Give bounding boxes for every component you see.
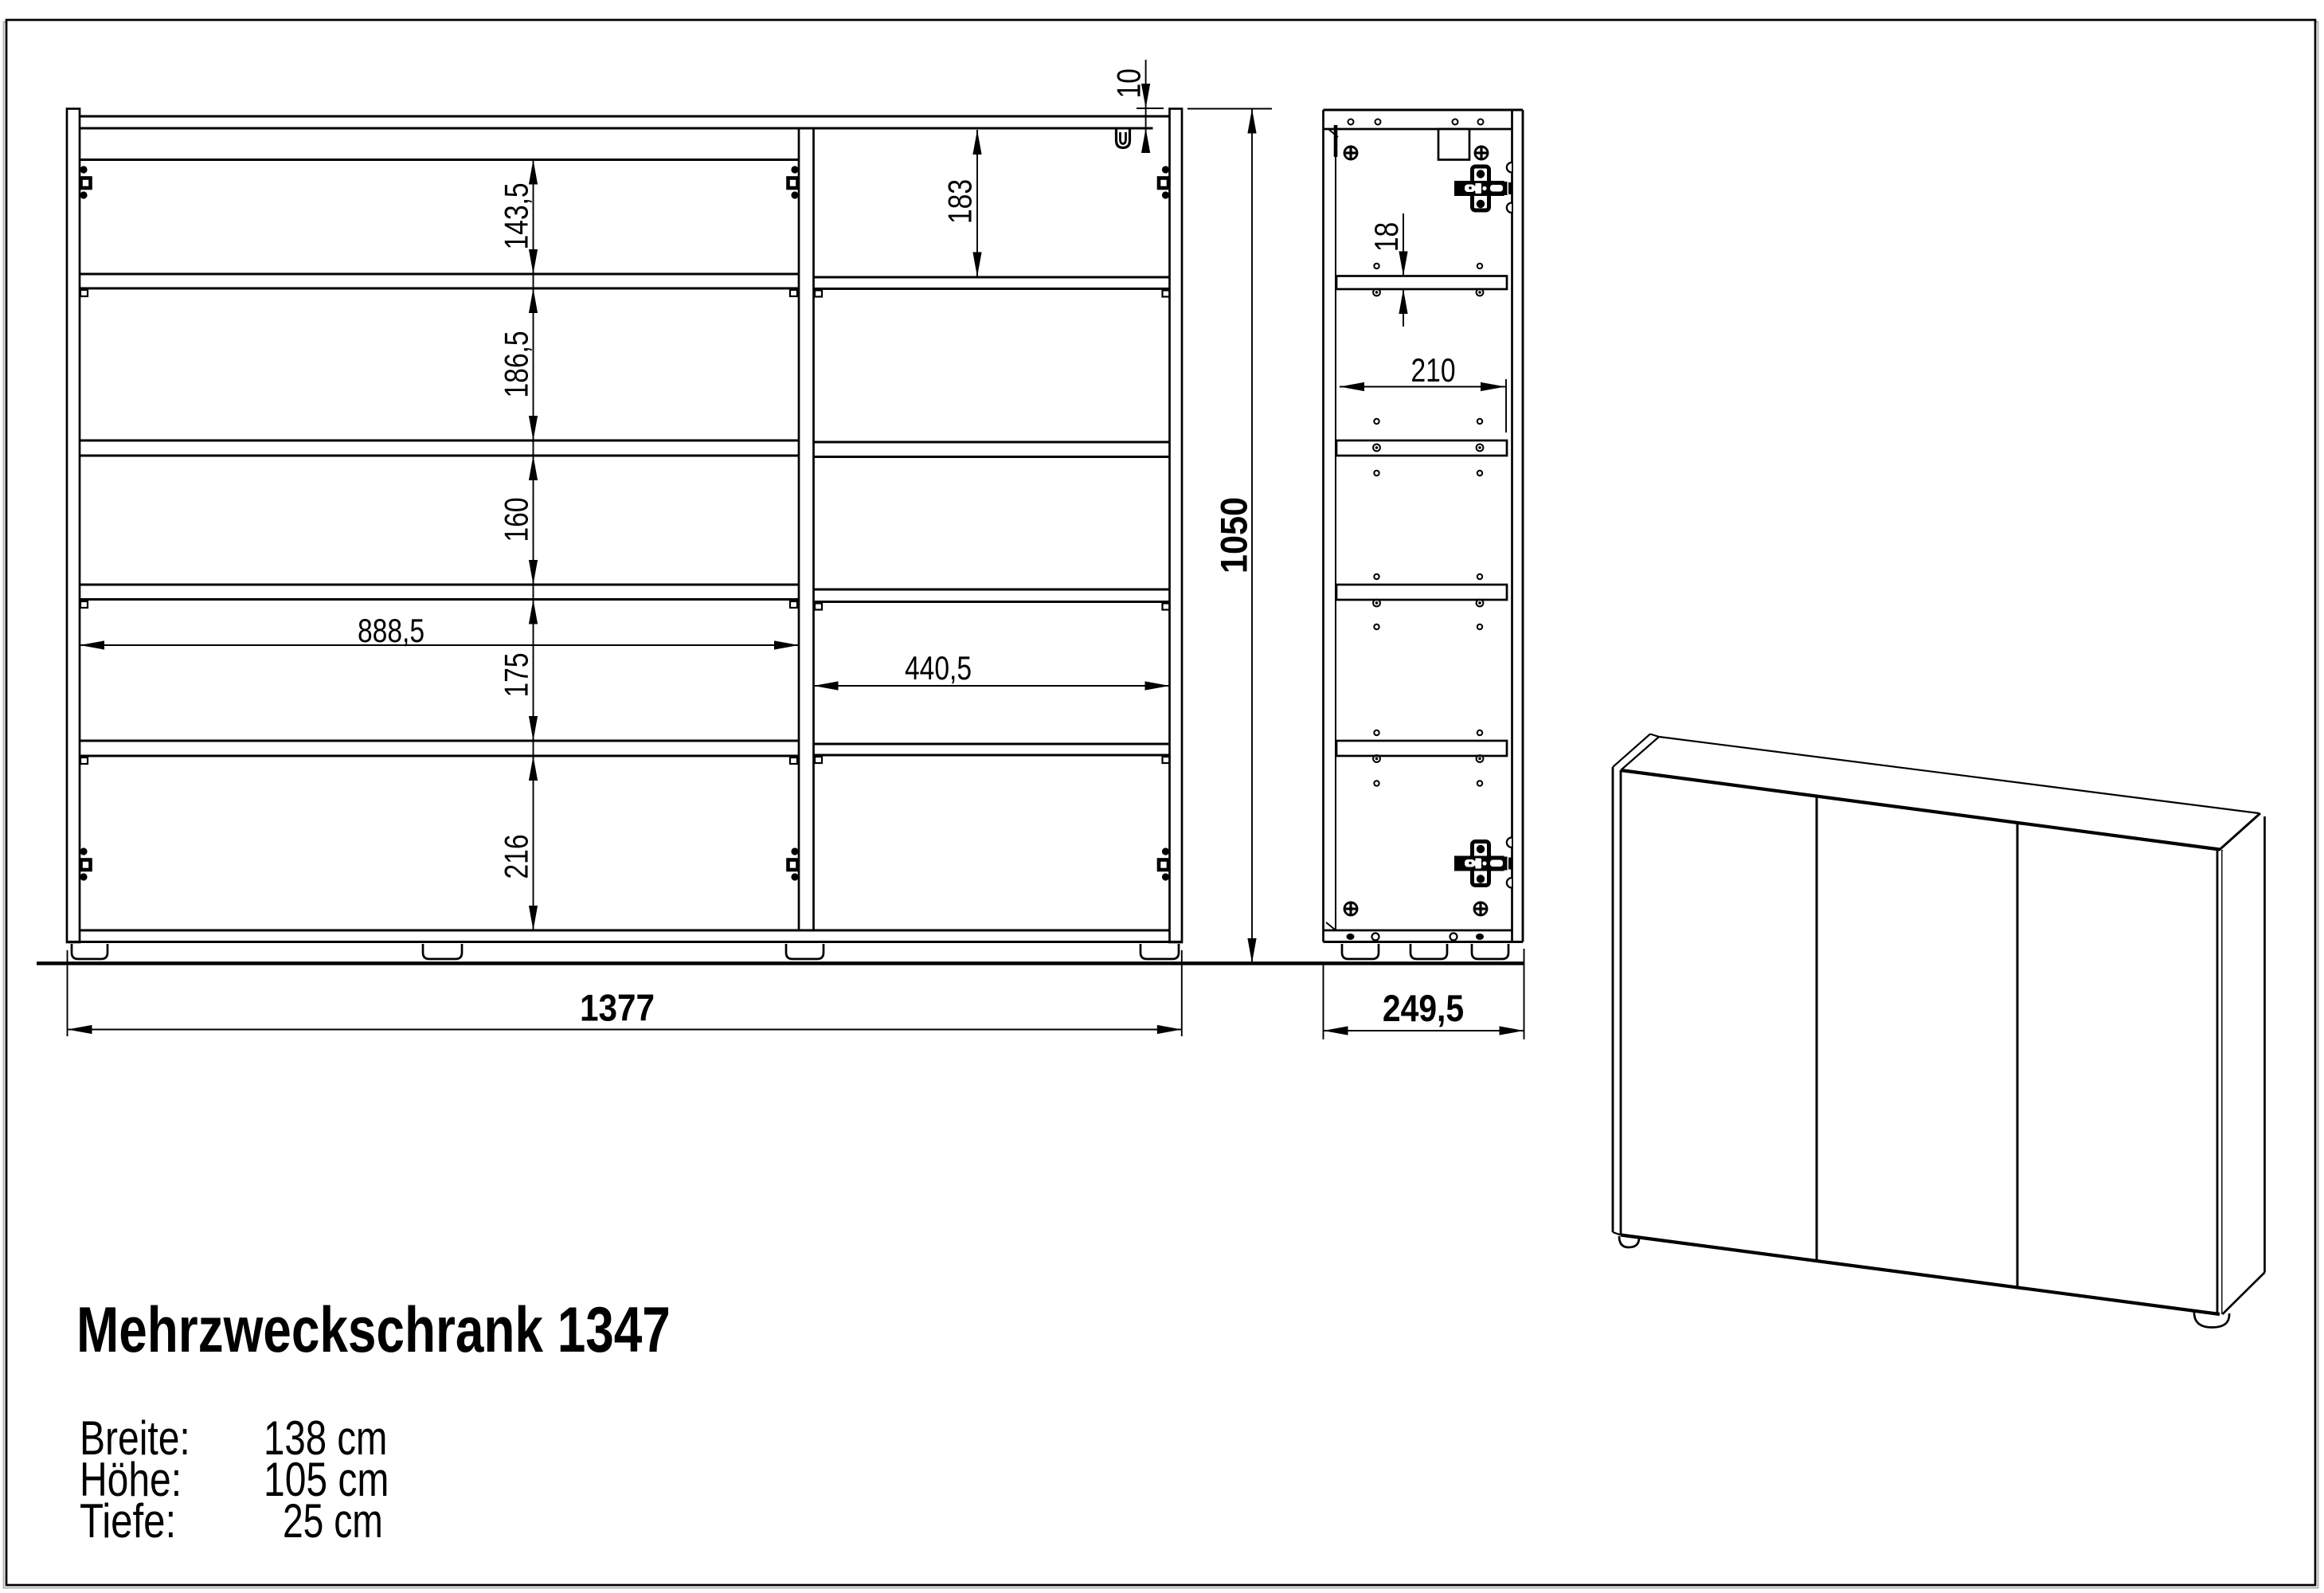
svg-text:18: 18 [1369, 222, 1406, 252]
svg-text:249,5: 249,5 [1383, 988, 1464, 1029]
svg-text:183: 183 [942, 179, 979, 224]
svg-text:1377: 1377 [580, 988, 655, 1030]
svg-text:Mehrzweckschrank 1347: Mehrzweckschrank 1347 [76, 1294, 671, 1366]
svg-text:175: 175 [499, 652, 535, 697]
svg-text:143,5: 143,5 [499, 182, 535, 249]
svg-text:160: 160 [499, 497, 535, 542]
svg-text:216: 216 [499, 834, 535, 879]
svg-text:186,5: 186,5 [499, 331, 535, 397]
svg-text:210: 210 [1410, 353, 1455, 389]
svg-text:25 cm: 25 cm [283, 1495, 383, 1548]
svg-text:440,5: 440,5 [905, 651, 972, 687]
svg-text:888,5: 888,5 [358, 613, 425, 650]
svg-text:1050: 1050 [1213, 497, 1255, 573]
svg-text:10: 10 [1111, 68, 1148, 98]
svg-text:Tiefe:: Tiefe: [80, 1493, 176, 1548]
